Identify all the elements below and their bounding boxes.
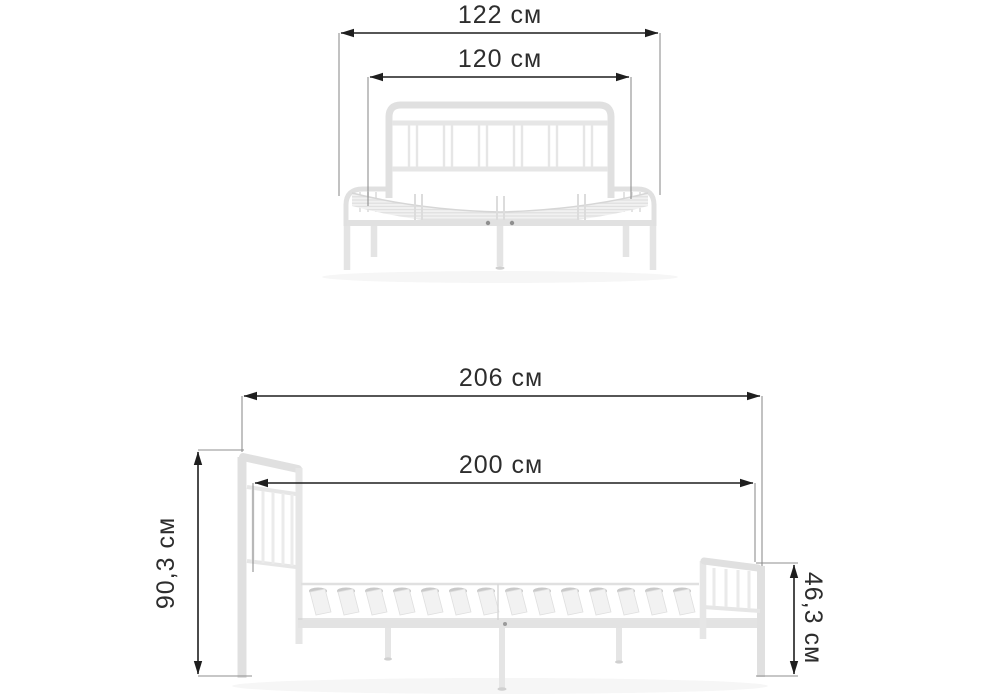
side-platform (298, 584, 760, 628)
bolt (486, 221, 490, 225)
side-headboard-bars (253, 490, 292, 566)
dimension-footboard-height-label: 46,3 см (799, 572, 827, 664)
dimension-inner-length: 200 см (253, 451, 755, 572)
dimension-headboard-height: 90,3 см (152, 450, 252, 676)
bolt (510, 221, 514, 225)
bolt (503, 622, 507, 626)
dimension-footboard-height: 46,3 см (756, 563, 827, 676)
side-footboard-bars (714, 568, 749, 609)
front-legs (347, 226, 653, 270)
dimension-inner-length-label: 200 см (459, 451, 543, 479)
dimension-inner-width-label: 120 см (458, 45, 542, 73)
bed-front-view-drawing (322, 105, 678, 283)
front-view-shadow (322, 271, 678, 283)
leg-foot (498, 687, 507, 691)
leg-foot (496, 266, 505, 270)
diagram-scene: 122 см 120 см 206 см 200 см 90,3 см 46,3… (0, 0, 1000, 700)
dimension-diagram: 122 см 120 см 206 см 200 см 90,3 см 46,3… (0, 0, 1000, 700)
dimension-overall-width-label: 122 см (458, 1, 542, 29)
leg-foot (384, 657, 392, 660)
front-headboard-bars (409, 125, 592, 167)
side-slats (309, 588, 695, 616)
side-headboard (242, 457, 299, 678)
dimension-headboard-height-label: 90,3 см (152, 517, 180, 609)
dimension-overall-length-label: 206 см (459, 364, 543, 392)
leg-foot (615, 660, 623, 663)
front-headboard (389, 105, 611, 198)
bed-side-view-drawing (232, 457, 768, 694)
